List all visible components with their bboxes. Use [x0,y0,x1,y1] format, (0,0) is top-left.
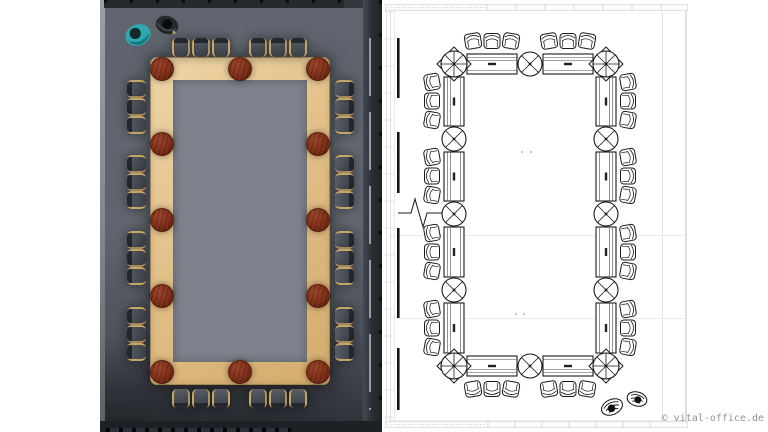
cad-table-segments [444,54,616,376]
corner-connector-node [589,349,623,383]
chair-symbol [502,32,520,50]
chair-symbol [621,93,636,109]
dark-person-icon [153,13,180,37]
conference-chair [289,38,307,57]
table-segment [596,77,616,126]
chair-symbol [464,32,482,50]
chair-symbol [423,186,441,204]
chair-symbol [621,244,636,260]
table-connector-node [228,360,252,384]
chair-symbol [619,300,637,318]
chair-symbol [425,244,440,260]
conference-chair [335,249,354,267]
conference-chair [269,38,287,57]
table-connector-node [306,208,330,232]
chair-symbol [484,382,500,397]
chair-symbol [423,224,441,242]
table-connector-node [306,57,330,81]
chair-symbol [425,168,440,184]
conference-chair [335,325,354,343]
chair-symbol [423,111,441,129]
chair-symbol [423,262,441,280]
conference-chair [335,155,354,173]
table-connector-node [150,284,174,308]
mid-connector-node [442,127,466,151]
conference-chair [127,343,146,361]
table-segment [467,356,517,376]
cad-connector-nodes [437,47,623,383]
table-segment [596,227,616,277]
table-connector-node [306,284,330,308]
table-connector-node [306,132,330,156]
mid-connector-node [594,127,618,151]
conference-chair [192,38,210,57]
table-connector-node [228,57,252,81]
chair-symbol [619,338,637,356]
mid-connector-node [442,202,466,226]
chair-symbol [540,380,558,398]
mid-connector-node [594,202,618,226]
chair-symbol [560,34,576,49]
mid-connector-node [518,52,542,76]
conference-chair [269,389,287,408]
watermark: © vital-office.de [640,412,764,425]
chair-symbol [423,338,441,356]
mid-connector-node [518,354,542,378]
chair-symbol [578,32,596,50]
chair-symbol [540,32,558,50]
table-connector-node [150,132,174,156]
window-wall-symbols [397,38,400,410]
conference-chair [212,38,230,57]
conference-chair [249,38,267,57]
chair-symbol [619,148,637,166]
conference-chair [335,267,354,285]
conference-chair [335,116,354,134]
conference-chair [172,389,190,408]
table-segment [444,77,464,126]
corner-connector-node [589,47,623,81]
table-segment [596,303,616,353]
conference-chair [335,173,354,191]
chair-symbol [484,34,500,49]
conference-chair [127,249,146,267]
table-segment [596,152,616,201]
table-connector-node [150,208,174,232]
chair-symbol [619,73,637,91]
conference-chair [212,389,230,408]
mid-connector-node [442,278,466,302]
cad-floorplan [383,0,693,432]
chair-symbol [423,148,441,166]
chair-symbol [423,73,441,91]
chair-symbol [619,186,637,204]
table-segment [444,152,464,201]
table-connector-node [150,57,174,81]
conference-chair [127,191,146,209]
corner-connector-node [437,47,471,81]
table-segment [444,303,464,353]
teal-person-icon [122,20,154,49]
chair-symbol [621,168,636,184]
chair-symbol [578,380,596,398]
page: © vital-office.de [0,0,768,432]
corner-connector-node [437,349,471,383]
table-segment [444,227,464,277]
chair-symbol [619,262,637,280]
chair-symbol [619,111,637,129]
conference-chair [127,267,146,285]
table-connector-node [150,360,174,384]
chair-symbol [425,93,440,109]
cad-person-icon [599,396,625,419]
conference-chair [127,325,146,343]
chair-symbol [423,300,441,318]
render-view-panel [100,0,382,432]
conference-chair [335,191,354,209]
center-point-marks [515,151,532,315]
table-segment [543,356,593,376]
mid-connector-node [594,278,618,302]
conference-chair [335,80,354,98]
table-segment [543,54,593,74]
conference-chair [335,343,354,361]
chair-symbol [560,382,576,397]
conference-chair [335,307,354,325]
cad-person-icon [626,390,649,409]
conference-chair [127,231,146,249]
table-segment [467,54,517,74]
chair-symbol [464,380,482,398]
conference-chair [249,389,267,408]
conference-chair [289,389,307,408]
conference-chair [127,173,146,191]
conference-chair [127,307,146,325]
conference-chair [127,116,146,134]
conference-chair [127,80,146,98]
chair-symbol [502,380,520,398]
conference-chair [192,389,210,408]
conference-chair [127,155,146,173]
conference-chair [335,98,354,116]
chair-symbol [425,320,440,336]
chair-symbol [621,320,636,336]
conference-chair [335,231,354,249]
conference-chair [127,98,146,116]
table-connector-node [306,360,330,384]
conference-chair [172,38,190,57]
chair-symbol [619,224,637,242]
